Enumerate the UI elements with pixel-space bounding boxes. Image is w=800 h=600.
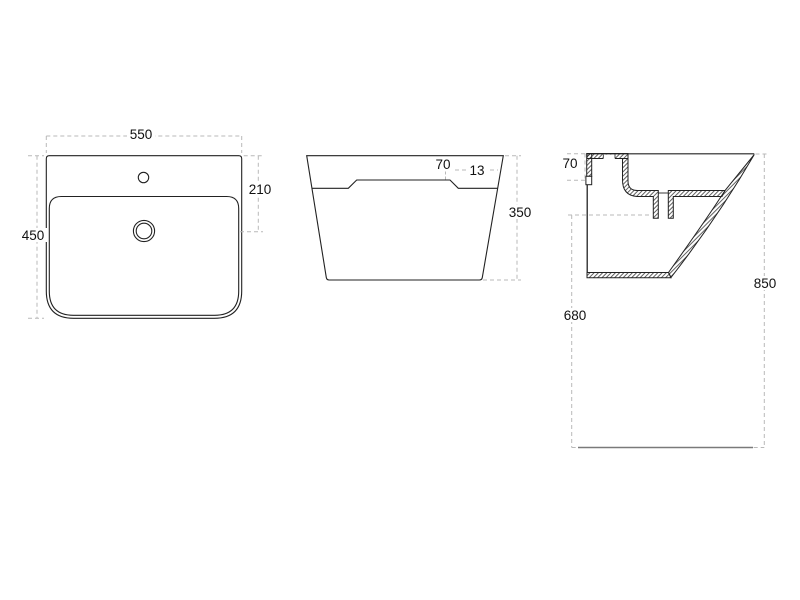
top-view-outer-outline <box>46 156 241 319</box>
drain-inner-circle <box>136 223 152 239</box>
side-tap-hole-gap <box>603 155 615 159</box>
dim-top-drain-label: 210 <box>249 182 272 197</box>
front-view: 70 13 350 <box>307 156 536 280</box>
drawing-page: 550 450 210 70 13 <box>0 0 800 600</box>
side-bottom-wall-section <box>587 273 671 278</box>
dim-side-850-label: 850 <box>754 276 777 291</box>
dim-front-deck-label: 70 <box>435 157 450 172</box>
side-view: 70 680 850 <box>559 154 781 448</box>
side-bowl-section-left <box>623 159 659 219</box>
side-view-sections <box>587 154 755 278</box>
front-view-deck-line <box>312 180 497 188</box>
side-front-wall-section <box>669 155 755 278</box>
tap-hole <box>138 172 148 182</box>
dim-front-step-label: 13 <box>469 163 484 178</box>
side-fixing-hole <box>586 176 592 184</box>
technical-drawing-canvas: 550 450 210 70 13 <box>0 0 800 600</box>
dim-front-height-label: 350 <box>509 205 532 220</box>
dim-top-depth-label: 450 <box>22 228 45 243</box>
top-view-bowl-outline <box>49 197 238 316</box>
dim-side-deck-label: 70 <box>562 156 577 171</box>
top-view: 550 450 210 <box>19 127 275 318</box>
dim-top-width-label: 550 <box>130 127 153 142</box>
dim-side-680-label: 680 <box>564 308 587 323</box>
